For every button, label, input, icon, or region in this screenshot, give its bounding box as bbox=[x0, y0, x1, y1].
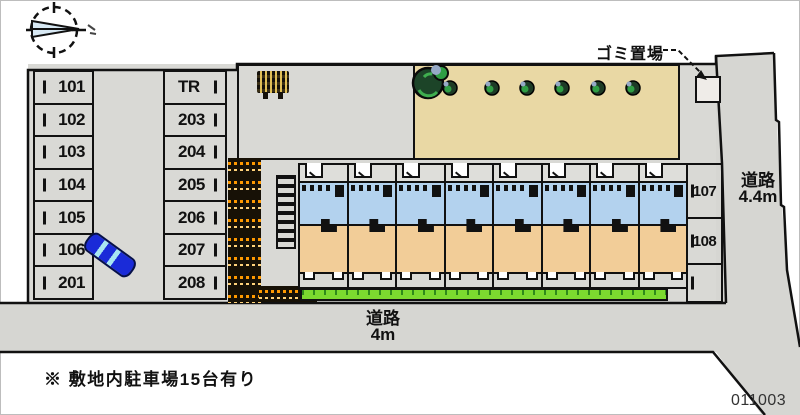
parking-stall: 107 bbox=[688, 165, 721, 217]
parking-stall: 208 bbox=[165, 265, 225, 298]
unit-fixture bbox=[321, 219, 337, 232]
building-unit bbox=[300, 165, 349, 287]
building-unit bbox=[446, 165, 495, 287]
lawn-strip bbox=[300, 288, 668, 301]
unit-balcony bbox=[300, 272, 347, 287]
stall-label: 101 bbox=[58, 77, 85, 97]
bicycle-parking-strip bbox=[228, 158, 261, 303]
stall-label: 104 bbox=[58, 175, 85, 195]
unit-entrance bbox=[591, 165, 638, 181]
apartment-building bbox=[298, 163, 688, 289]
site-note: ※ 敷地内駐車場15台有り bbox=[44, 365, 257, 390]
unit-fixture bbox=[660, 219, 676, 232]
building-unit bbox=[640, 165, 687, 287]
unit-balcony bbox=[591, 272, 638, 287]
unit-wet-area bbox=[640, 181, 687, 224]
parking-stall-empty bbox=[688, 263, 721, 301]
stairs-icon bbox=[276, 175, 296, 249]
unit-balcony bbox=[494, 272, 541, 287]
unit-entrance bbox=[640, 165, 687, 181]
building-unit bbox=[349, 165, 398, 287]
unit-entrance bbox=[397, 165, 444, 181]
parking-stall: 108 bbox=[688, 217, 721, 263]
unit-balcony bbox=[640, 272, 687, 287]
building-unit bbox=[494, 165, 543, 287]
unit-wet-area bbox=[543, 181, 590, 224]
parking-stall: 102 bbox=[35, 103, 92, 136]
stall-label: 102 bbox=[58, 110, 85, 130]
stall-label: 106 bbox=[58, 240, 85, 260]
unit-entrance bbox=[543, 165, 590, 181]
stall-label: 108 bbox=[693, 233, 717, 250]
parking-stall: 204 bbox=[165, 135, 225, 168]
signboard-icon bbox=[257, 71, 289, 93]
door-icon bbox=[499, 163, 517, 178]
unit-balcony bbox=[397, 272, 444, 287]
stall-label: 208 bbox=[178, 273, 205, 293]
unit-wet-area bbox=[300, 181, 347, 224]
unit-wet-area bbox=[349, 181, 396, 224]
unit-entrance bbox=[349, 165, 396, 181]
building-unit bbox=[397, 165, 446, 287]
parking-column-middle: TR 203 204 205 206 207 208 bbox=[163, 70, 227, 300]
unit-balcony bbox=[446, 272, 493, 287]
unit-fixture bbox=[418, 219, 434, 232]
parking-stall: 203 bbox=[165, 103, 225, 136]
door-icon bbox=[596, 163, 614, 178]
door-icon bbox=[645, 163, 663, 178]
stall-label: 103 bbox=[58, 142, 85, 162]
road-right bbox=[716, 53, 800, 415]
parking-stall: 206 bbox=[165, 200, 225, 233]
unit-fixture bbox=[563, 219, 579, 232]
door-icon bbox=[305, 163, 323, 178]
unit-wet-area bbox=[397, 181, 444, 224]
parking-stall: 201 bbox=[35, 265, 92, 298]
stall-label: 107 bbox=[693, 183, 717, 200]
parking-stall: 103 bbox=[35, 135, 92, 168]
site-plan-map: 101 102 103 104 105 106 201 TR 203 204 2… bbox=[0, 0, 800, 415]
unit-wet-area bbox=[446, 181, 493, 224]
door-icon bbox=[354, 163, 372, 178]
parking-column-left: 101 102 103 104 105 106 201 bbox=[33, 70, 94, 300]
stall-label: 206 bbox=[178, 208, 205, 228]
stall-label: TR bbox=[178, 77, 200, 97]
stall-label: 105 bbox=[58, 208, 85, 228]
stall-label: 205 bbox=[178, 175, 205, 195]
unit-entrance bbox=[446, 165, 493, 181]
road-bottom-width: 4m bbox=[330, 325, 436, 345]
building-unit bbox=[591, 165, 640, 287]
stall-label: 203 bbox=[178, 110, 205, 130]
stall-label: 201 bbox=[58, 273, 85, 293]
unit-fixture bbox=[612, 219, 628, 232]
parking-stall: 101 bbox=[35, 72, 92, 103]
garbage-label: ゴミ置場 bbox=[596, 40, 664, 64]
stall-label: 204 bbox=[178, 142, 205, 162]
unit-entrance bbox=[300, 165, 347, 181]
unit-balcony bbox=[543, 272, 590, 287]
road-right-width: 4.4m bbox=[722, 187, 794, 207]
unit-fixture bbox=[369, 219, 385, 232]
door-icon bbox=[451, 163, 469, 178]
building-unit bbox=[543, 165, 592, 287]
door-icon bbox=[402, 163, 420, 178]
unit-balcony bbox=[349, 272, 396, 287]
parking-stall: 105 bbox=[35, 200, 92, 233]
parking-stall: 104 bbox=[35, 168, 92, 201]
unit-fixture bbox=[515, 219, 531, 232]
door-icon bbox=[548, 163, 566, 178]
unit-entrance bbox=[494, 165, 541, 181]
unit-wet-area bbox=[494, 181, 541, 224]
garden-area bbox=[413, 64, 680, 160]
stall-label: 207 bbox=[178, 240, 205, 260]
plan-number: 011003 bbox=[731, 392, 786, 410]
unit-fixture bbox=[466, 219, 482, 232]
parking-stall: TR bbox=[165, 72, 225, 103]
parking-stall: 207 bbox=[165, 233, 225, 266]
parking-stall: 205 bbox=[165, 168, 225, 201]
unit-wet-area bbox=[591, 181, 638, 224]
garbage-area bbox=[695, 76, 721, 103]
parking-column-right: 107 108 bbox=[686, 163, 723, 303]
